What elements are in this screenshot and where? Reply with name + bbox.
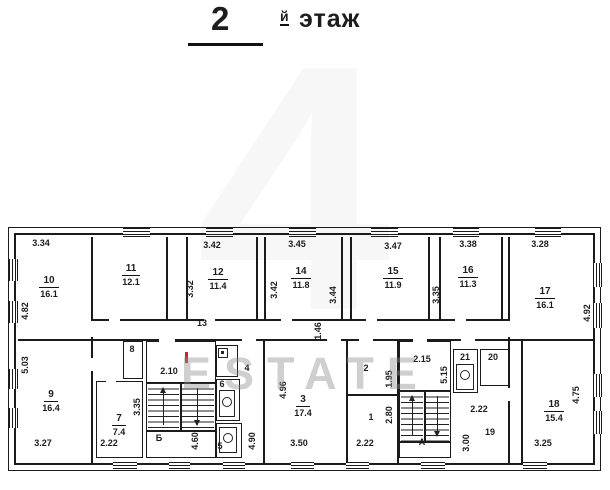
room-number: 9 [44, 389, 58, 402]
stairwell-a-label: А [408, 437, 436, 447]
room-19-height-dim: 3.00 [461, 429, 471, 457]
stairwell-b-height-dim: 4.60 [190, 427, 200, 455]
wall [346, 339, 348, 463]
stairwell-b-width-dim: 2.10 [155, 366, 183, 376]
door-opening [159, 339, 175, 342]
corridor-13-label: 13 [188, 318, 216, 328]
floorplan-page: 2 й этаж 4 ESTATE [0, 0, 610, 490]
window [593, 411, 602, 434]
wall [350, 237, 352, 319]
wall [346, 394, 399, 396]
window [593, 263, 602, 287]
door-opening [508, 388, 510, 401]
floor-number-underline [188, 43, 263, 46]
door-opening [455, 319, 466, 322]
room-4-height-dim: 4.90 [247, 427, 257, 455]
window [523, 462, 547, 471]
room-number: 7 [112, 413, 126, 426]
window [421, 462, 445, 471]
room-18-height-dim: 4.75 [571, 381, 581, 409]
window [593, 303, 602, 328]
room-3-width-dim: 3.50 [285, 438, 313, 448]
room-12-label: 12 11.4 [198, 262, 238, 291]
wall [256, 237, 258, 319]
room-16-height-dim: 3.35 [431, 281, 441, 309]
door-opening [242, 339, 256, 342]
door-opening [91, 358, 93, 371]
room-6-label: 6 [208, 379, 236, 389]
door-opening [327, 339, 341, 342]
room-16-label: 16 11.3 [448, 260, 488, 289]
door-opening [508, 321, 510, 337]
room-1-width-dim: 2.22 [351, 438, 379, 448]
room-area: 16.1 [525, 300, 565, 310]
window [371, 228, 398, 237]
stair-arrow-up-icon [412, 396, 413, 436]
room-5-label: 5 [206, 441, 234, 451]
room-number: 16 [458, 265, 477, 278]
room-1-label: 1 [357, 412, 385, 422]
door-opening [461, 339, 475, 342]
window [289, 228, 316, 237]
wall [147, 430, 215, 432]
room-number: 11 [122, 263, 141, 276]
window [123, 228, 150, 237]
sink-icon [218, 348, 228, 358]
floor-word: этаж [299, 5, 360, 34]
wall [428, 237, 430, 319]
wall [91, 237, 93, 463]
room-number: 18 [544, 399, 563, 412]
window [223, 462, 245, 471]
room-area: 11.9 [373, 280, 413, 290]
window [453, 228, 479, 237]
door-opening [109, 319, 120, 322]
room-12-height-dim: 3.32 [185, 275, 195, 303]
room-7-height-dim: 3.35 [132, 393, 142, 421]
wall [18, 339, 593, 341]
room-10-width-dim: 3.34 [27, 238, 55, 248]
room-area: 11.4 [198, 281, 238, 291]
window [535, 228, 561, 237]
window [169, 462, 190, 471]
door-opening [281, 319, 292, 322]
room-number: 12 [208, 267, 227, 280]
room-number: 10 [39, 275, 58, 288]
window [113, 462, 137, 471]
door-opening [106, 380, 116, 383]
window [9, 408, 18, 428]
room-18-label: 18 15.4 [534, 394, 574, 423]
window [206, 228, 233, 237]
room-14-height-dim: 3.42 [269, 276, 279, 304]
door-opening [359, 339, 373, 342]
door-opening [366, 319, 377, 322]
room-15-label: 15 11.9 [373, 261, 413, 290]
window [291, 462, 314, 471]
room-21-label: 21 [451, 352, 479, 362]
wall [264, 237, 266, 319]
room-4-label: 4 [233, 363, 261, 373]
floor-suffix: й [280, 8, 289, 26]
room-7-width-dim: 2.22 [95, 438, 123, 448]
window [593, 374, 602, 397]
room-number: 3 [296, 394, 310, 407]
room-17-label: 17 16.1 [525, 281, 565, 310]
stair-arrow-down-icon [197, 388, 198, 425]
room-area: 11.8 [281, 280, 321, 290]
room-number: 14 [291, 266, 310, 279]
room-19-label: 19 [476, 427, 504, 437]
room-8-label: 8 [118, 344, 146, 354]
room-10-height-dim: 4.82 [20, 297, 30, 325]
wall [91, 319, 510, 321]
room-area: 7.4 [99, 427, 139, 437]
room-area: 12.1 [111, 277, 151, 287]
room-17-width-dim: 3.28 [526, 239, 554, 249]
window [9, 369, 18, 389]
floor-plan: 10 16.1 11 12.1 12 11.4 14 11.8 15 11.9 … [8, 227, 601, 471]
room-14-width-dim: 3.45 [283, 239, 311, 249]
room-1-height-dim: 2.80 [384, 401, 394, 429]
room-3-label: 3 17.4 [283, 389, 323, 418]
door-opening [91, 321, 93, 337]
room-15-height-dim: 3.44 [328, 281, 338, 309]
room-3-height-dim: 4.96 [278, 376, 288, 404]
room-16-width-dim: 3.38 [454, 239, 482, 249]
floor-number: 2 [211, 0, 229, 38]
room-area: 15.4 [534, 413, 574, 423]
room-17-height-dim: 4.92 [582, 299, 592, 327]
room-20-label: 20 [479, 352, 507, 362]
room-18-width-dim: 3.25 [529, 438, 557, 448]
wall [341, 237, 343, 319]
room-9-label: 9 16.4 [31, 384, 71, 413]
room-10-label: 10 16.1 [29, 270, 69, 299]
stairwell-a-height-dim: 5.15 [439, 361, 449, 389]
stairwell-b-label: Б [145, 433, 173, 443]
toilet-icon [219, 390, 235, 417]
room-14-label: 14 11.8 [281, 261, 321, 290]
wall [501, 237, 503, 319]
corridor-width-dim: 1.46 [313, 317, 323, 345]
window [9, 301, 18, 323]
room-2-label: 2 [352, 363, 380, 373]
room-9-width-dim: 3.27 [29, 438, 57, 448]
room-area: 17.4 [283, 408, 323, 418]
stair-arrow-down-icon [437, 396, 438, 436]
room-9-height-dim: 5.03 [20, 351, 30, 379]
window [346, 462, 369, 471]
room-number: 17 [535, 286, 554, 299]
room-2-height-dim: 1.95 [384, 365, 394, 393]
room-12-width-dim: 3.42 [198, 240, 226, 250]
flue-mark-icon [185, 352, 188, 363]
stair-arrow-up-icon [163, 388, 164, 425]
toilet-icon [456, 364, 474, 390]
wall [521, 339, 523, 463]
stairwell-a-width-dim: 2.15 [408, 354, 436, 364]
wall [166, 237, 168, 319]
room-area: 16.1 [29, 289, 69, 299]
door-opening [413, 339, 427, 342]
window [9, 259, 18, 281]
wall [263, 339, 265, 463]
room-19-width-dim: 2.22 [465, 404, 493, 414]
room-number: 15 [383, 266, 402, 279]
room-15-width-dim: 3.47 [379, 241, 407, 251]
room-area: 11.3 [448, 279, 488, 289]
room-11-label: 11 12.1 [111, 258, 151, 287]
room-area: 16.4 [31, 403, 71, 413]
